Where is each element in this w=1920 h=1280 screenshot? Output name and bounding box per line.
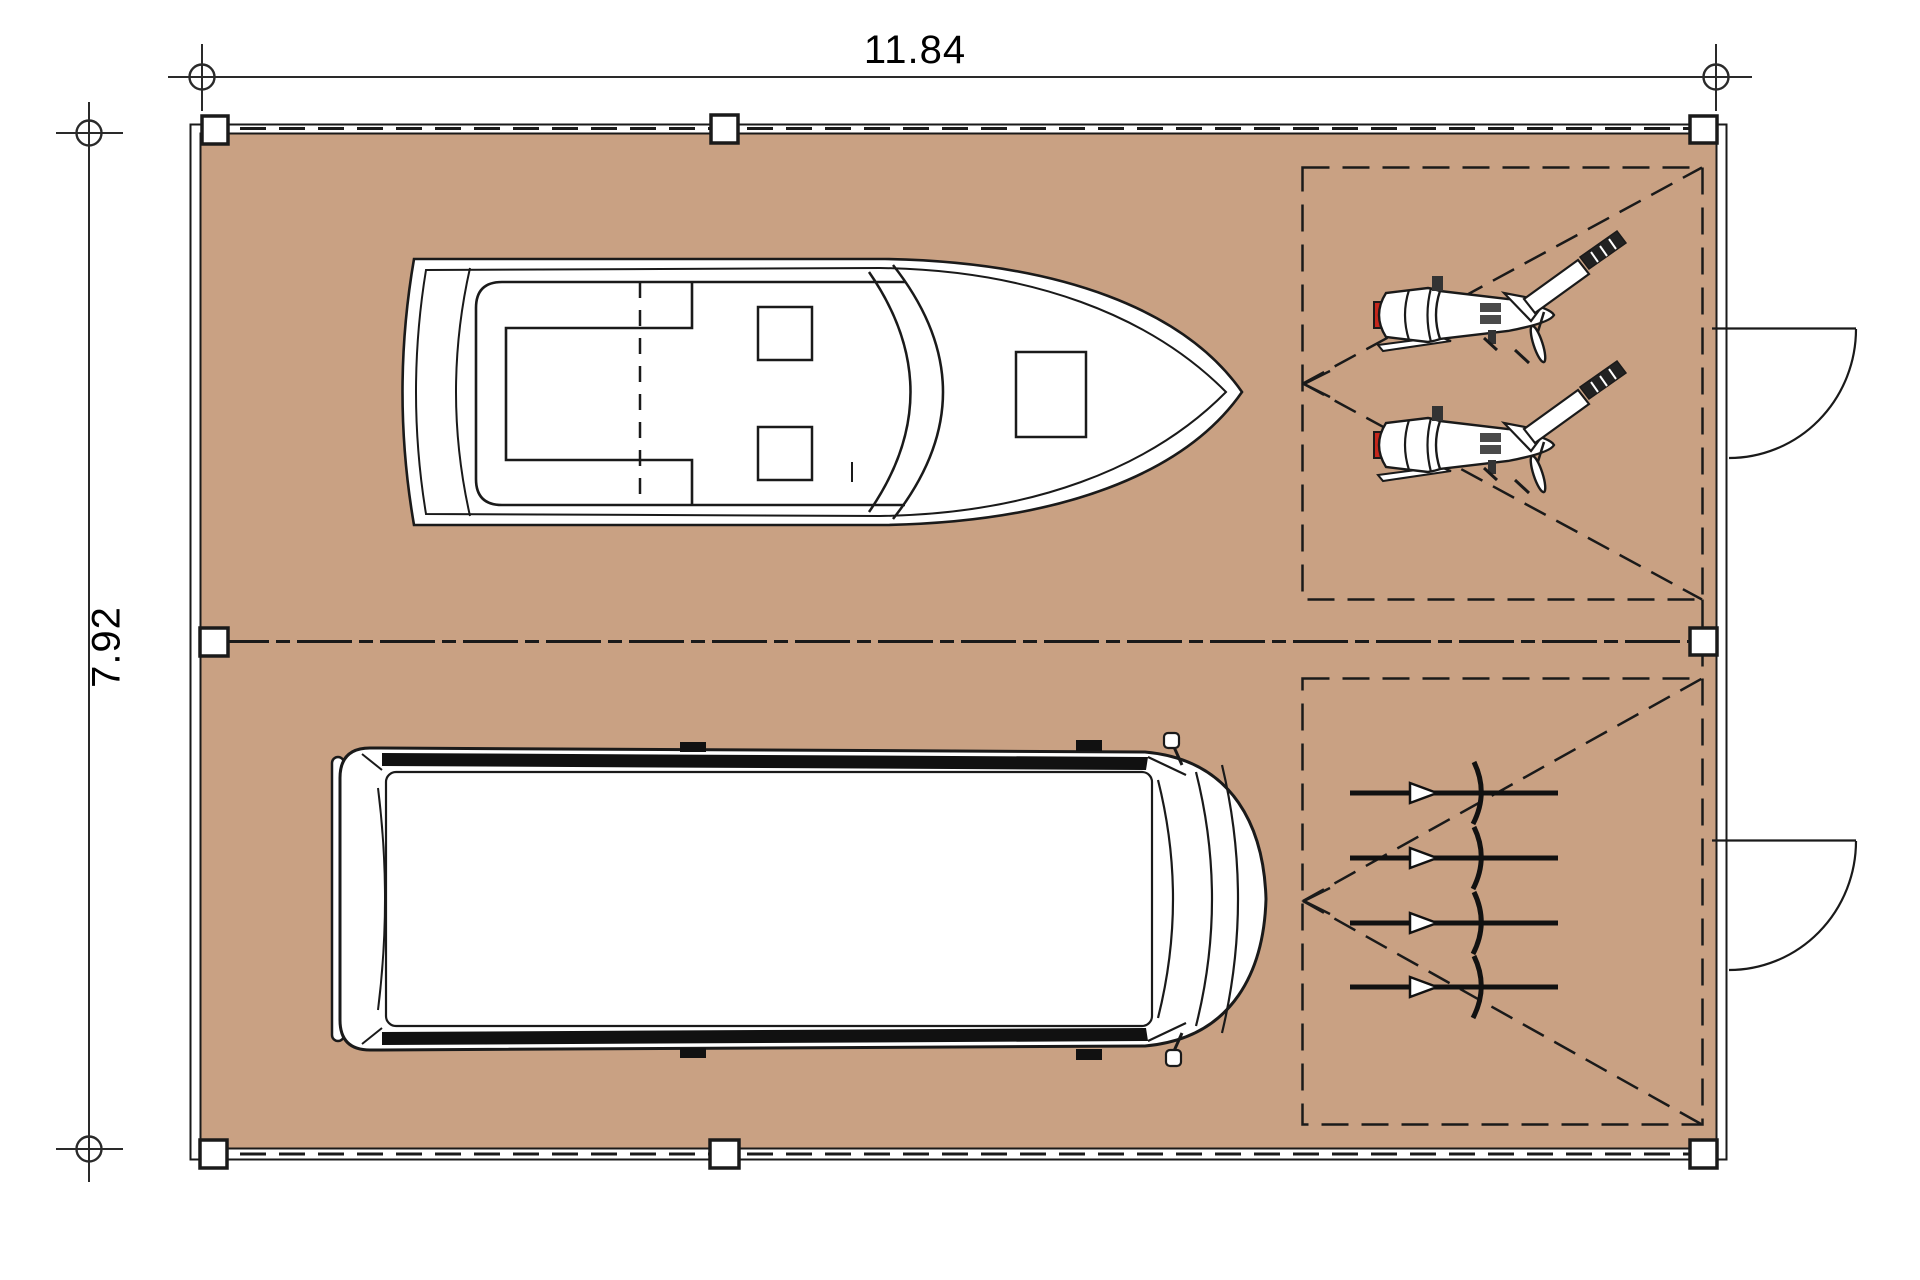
door-swing-arc bbox=[1729, 841, 1856, 970]
floor-plan-drawing bbox=[0, 0, 1920, 1280]
post bbox=[202, 116, 228, 144]
boat-hull bbox=[403, 259, 1243, 525]
door-swing-arc bbox=[1729, 329, 1856, 458]
post bbox=[200, 628, 228, 656]
post bbox=[1690, 1140, 1717, 1168]
boat-seat bbox=[758, 307, 812, 360]
van-mirror bbox=[1164, 733, 1179, 748]
boat bbox=[403, 259, 1243, 525]
post bbox=[1690, 116, 1717, 143]
width-dimension-label: 11.84 bbox=[864, 28, 966, 73]
van-mirror bbox=[1166, 1050, 1181, 1066]
van bbox=[332, 733, 1266, 1066]
doors bbox=[1712, 329, 1856, 971]
floor-plan: 11.84 7.92 bbox=[0, 0, 1920, 1280]
post bbox=[1690, 628, 1717, 655]
post bbox=[200, 1140, 227, 1168]
boat-bow-hatch bbox=[1016, 352, 1086, 437]
post bbox=[711, 115, 738, 143]
van-body bbox=[340, 748, 1266, 1050]
boat-seat bbox=[758, 427, 812, 480]
post bbox=[710, 1140, 739, 1168]
height-dimension-label: 7.92 bbox=[85, 606, 130, 688]
